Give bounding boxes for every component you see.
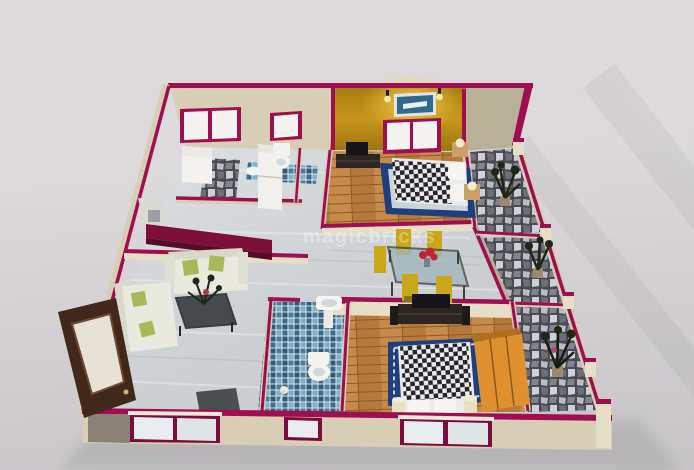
shower-window	[284, 417, 322, 441]
bed2-checkered-spread	[400, 343, 472, 400]
back-wall	[168, 73, 533, 154]
store-window	[180, 107, 241, 143]
floor-plan-render: magicbricks	[0, 0, 694, 470]
floor-plan-svg: magicbricks	[0, 0, 694, 470]
washing-machine-top	[182, 146, 212, 158]
living-room-window	[128, 411, 222, 443]
bed1-checkered-spread	[392, 160, 452, 204]
corner-pillar	[596, 402, 611, 448]
corner-pillar-cap	[596, 399, 611, 404]
bedroom-2-window	[398, 415, 494, 447]
door-knob	[124, 390, 129, 395]
bed2-pillow-2	[434, 399, 456, 415]
kitchen-sink	[148, 210, 160, 222]
utility-basin	[246, 167, 260, 176]
utility-window	[270, 111, 302, 141]
gold-wall-window	[383, 118, 441, 154]
watermark-text: magicbricks	[303, 226, 436, 248]
back-wall-cap	[168, 83, 533, 88]
entrance-doorway	[88, 414, 130, 443]
washing-machine-front	[182, 156, 212, 184]
sofa-top	[165, 248, 248, 294]
bed1-pillow-1	[447, 162, 465, 180]
gold-wall-left-jamb	[331, 88, 335, 150]
toilet-2	[308, 352, 330, 381]
